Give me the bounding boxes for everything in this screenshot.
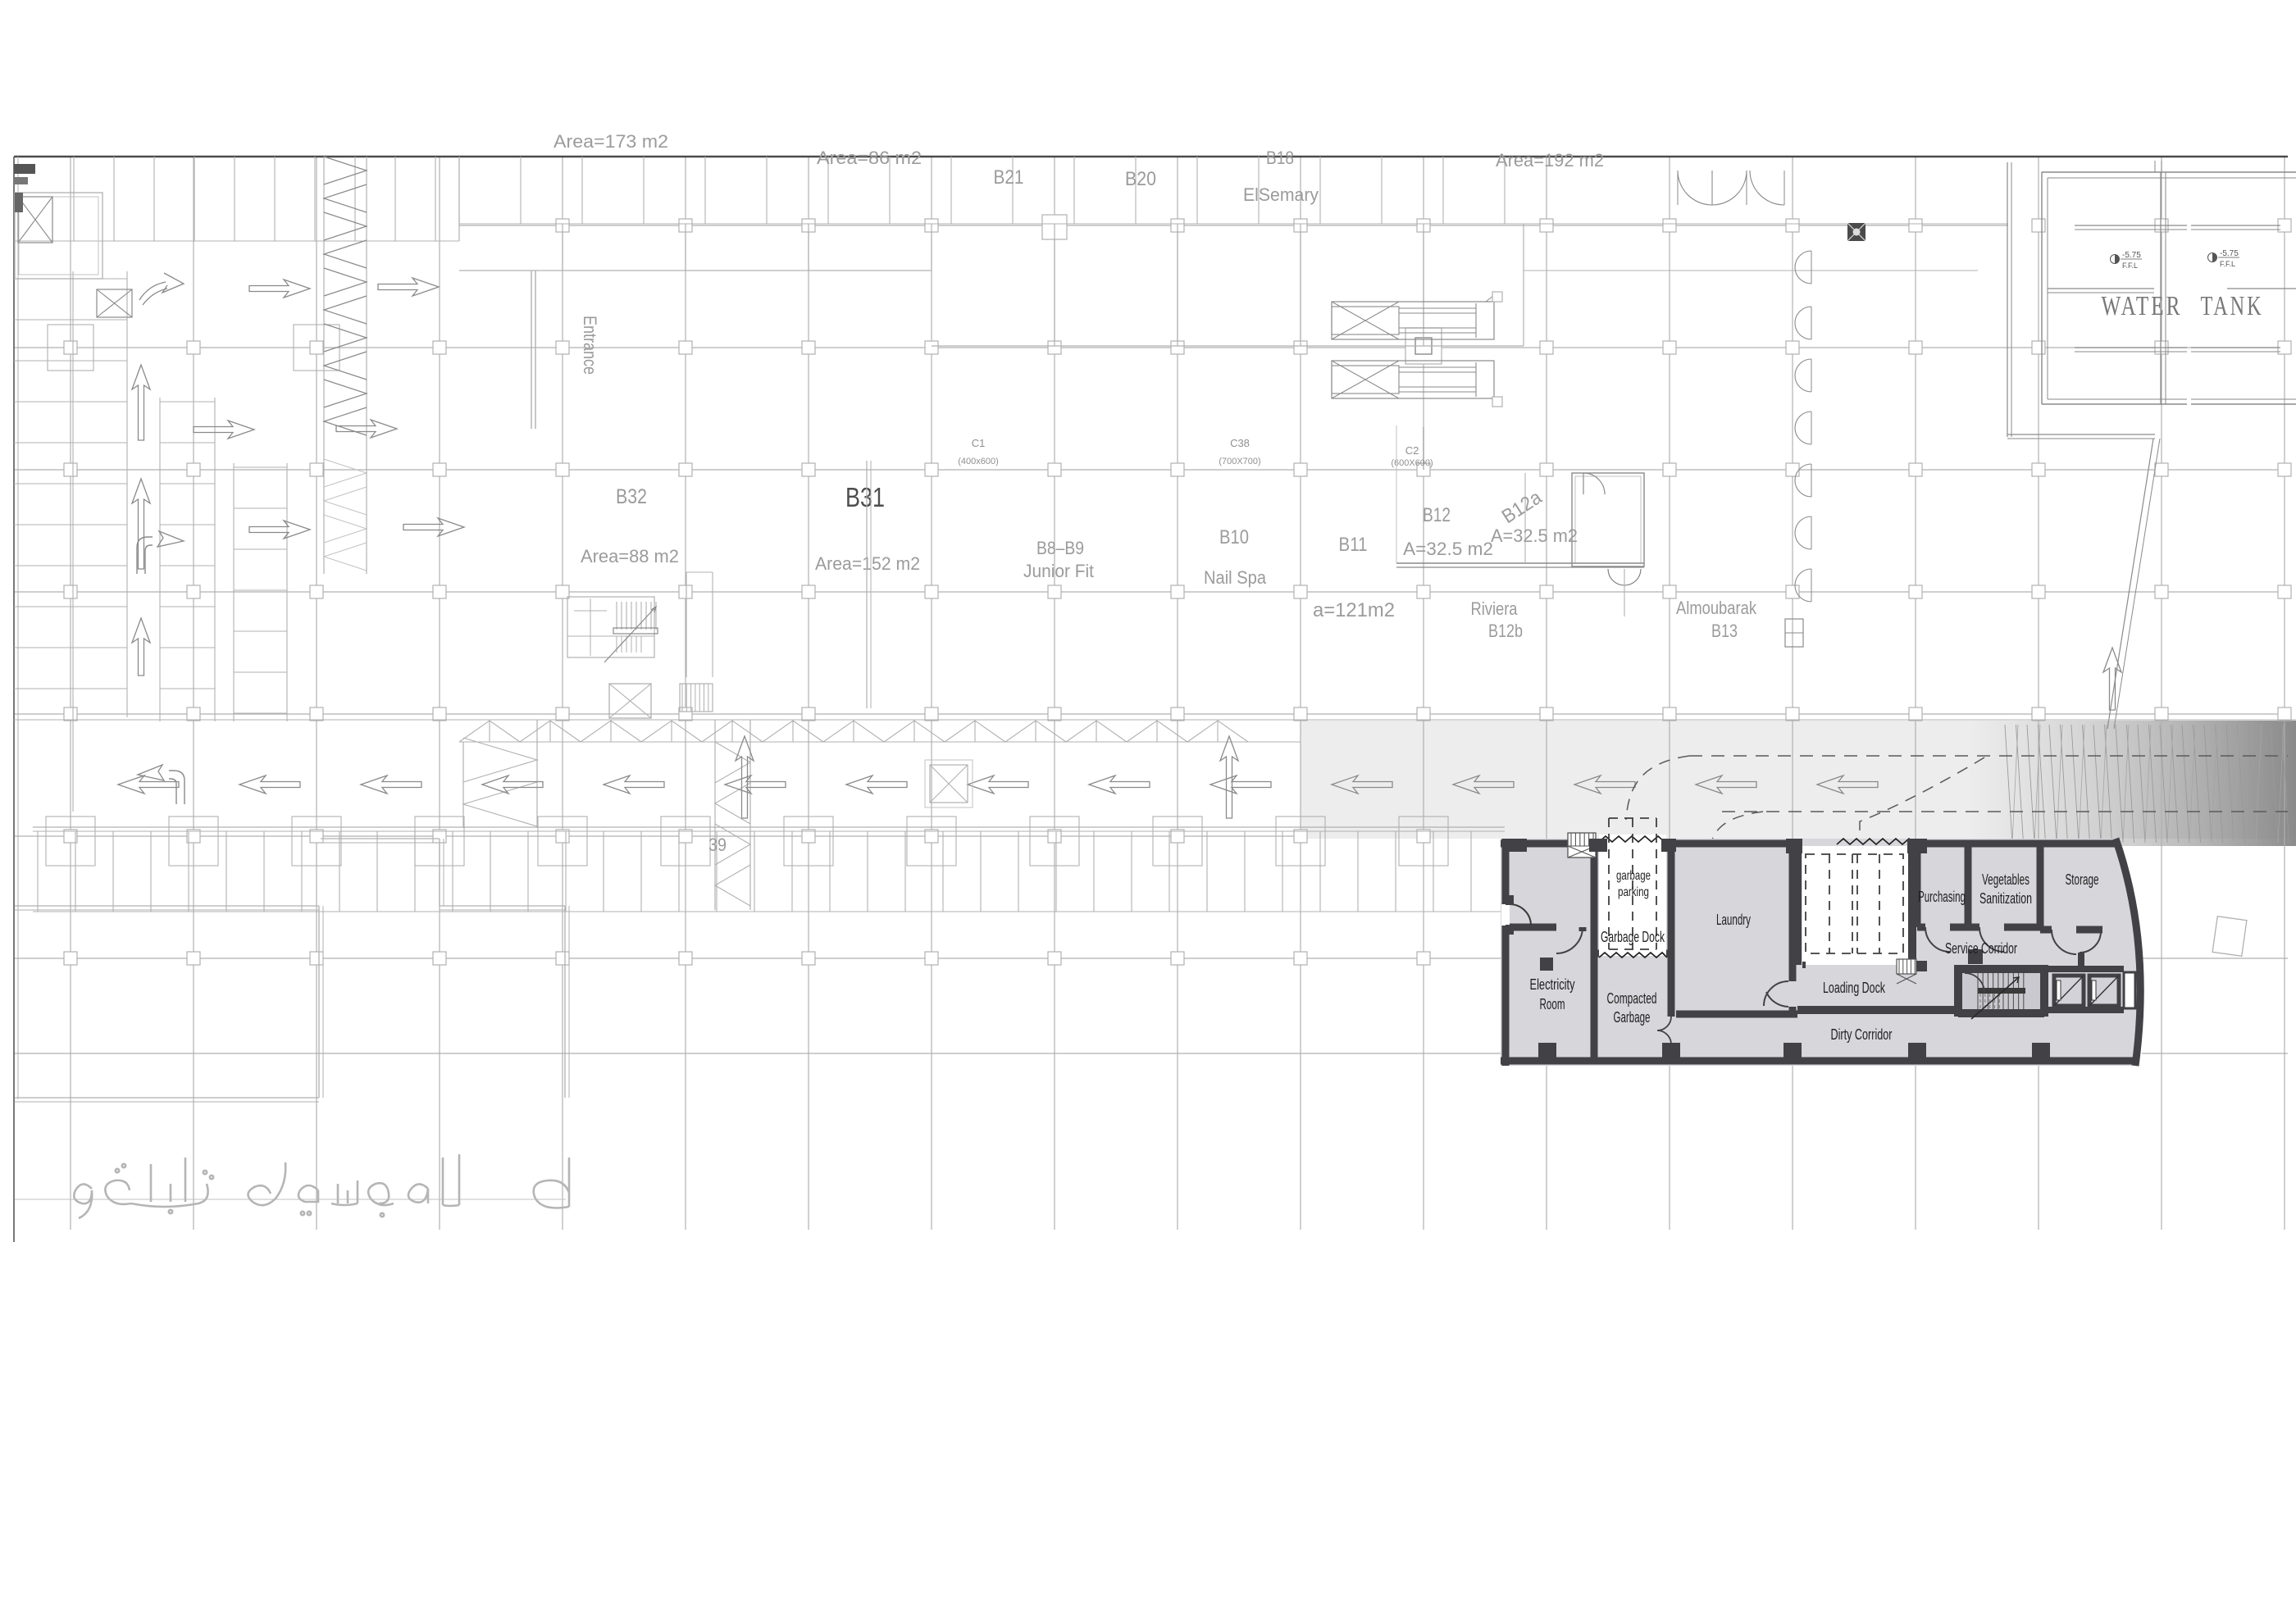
svg-text:-5.75: -5.75 [2220, 249, 2239, 258]
svg-text:a=121m2: a=121m2 [1313, 599, 1395, 621]
svg-text:F.F.L: F.F.L [2122, 262, 2138, 270]
svg-text:(600X600): (600X600) [1391, 458, 1433, 468]
svg-text:B12: B12 [1423, 504, 1451, 526]
svg-text:Garbage Dock: Garbage Dock [1601, 929, 1665, 945]
svg-text:Entrance: Entrance [580, 316, 600, 375]
svg-text:C38: C38 [1230, 437, 1250, 449]
svg-text:B10: B10 [1219, 526, 1249, 548]
svg-text:C2: C2 [1405, 444, 1419, 457]
svg-text:Service Corridor: Service Corridor [1945, 940, 2017, 957]
svg-text:Electricity: Electricity [1530, 976, 1575, 993]
svg-text:-5.75: -5.75 [2122, 251, 2141, 260]
svg-text:parking: parking [1618, 885, 1649, 899]
svg-text:B18: B18 [1266, 148, 1294, 168]
svg-text:WATER: WATER [2102, 291, 2183, 321]
svg-text:A=32.5 m2: A=32.5 m2 [1491, 525, 1578, 546]
svg-text:Junior Fit: Junior Fit [1023, 561, 1094, 581]
svg-text:Vegetables: Vegetables [1982, 871, 2029, 888]
svg-text:Area=86 m2: Area=86 m2 [817, 148, 922, 168]
svg-text:B11: B11 [1339, 534, 1368, 556]
svg-text:B32: B32 [616, 485, 647, 508]
svg-text:Loading Dock: Loading Dock [1823, 980, 1886, 996]
svg-text:Area=173 m2: Area=173 m2 [553, 131, 668, 152]
svg-text:Purchasing: Purchasing [1918, 889, 1966, 905]
svg-text:TANK: TANK [2201, 291, 2264, 321]
svg-text:Area=88 m2: Area=88 m2 [581, 546, 679, 566]
svg-text:Riviera: Riviera [1471, 598, 1519, 619]
svg-text:Area=152 m2: Area=152 m2 [815, 553, 920, 574]
svg-text:Dirty Corridor: Dirty Corridor [1831, 1026, 1893, 1043]
svg-text:garbage: garbage [1616, 869, 1651, 883]
svg-text:B12b: B12b [1488, 621, 1523, 641]
svg-text:(400x600): (400x600) [958, 457, 999, 466]
svg-text:Sanitization: Sanitization [1979, 890, 2032, 907]
svg-text:Compacted: Compacted [1607, 990, 1657, 1007]
svg-text:Laundry: Laundry [1716, 912, 1751, 928]
svg-text:Room: Room [1540, 996, 1565, 1012]
svg-text:Nail Spa: Nail Spa [1204, 567, 1267, 588]
svg-text:B20: B20 [1125, 168, 1156, 190]
svg-text:Storage: Storage [2066, 871, 2099, 888]
svg-text:39: 39 [708, 835, 727, 855]
svg-text:B8–B9: B8–B9 [1036, 538, 1084, 558]
svg-text:B31: B31 [845, 482, 885, 512]
svg-text:F.F.L: F.F.L [2220, 260, 2235, 268]
svg-text:B13: B13 [1711, 621, 1738, 641]
svg-text:C1: C1 [972, 437, 986, 449]
svg-text:Garbage: Garbage [1614, 1009, 1651, 1026]
svg-text:ElSemary: ElSemary [1243, 184, 1319, 205]
svg-text:Area=192 m2: Area=192 m2 [1496, 150, 1604, 171]
svg-text:B21: B21 [994, 166, 1024, 189]
svg-text:(700X700): (700X700) [1219, 457, 1260, 466]
svg-text:A=32.5 m2: A=32.5 m2 [1403, 539, 1493, 559]
svg-text:Almoubarak: Almoubarak [1676, 598, 1757, 618]
